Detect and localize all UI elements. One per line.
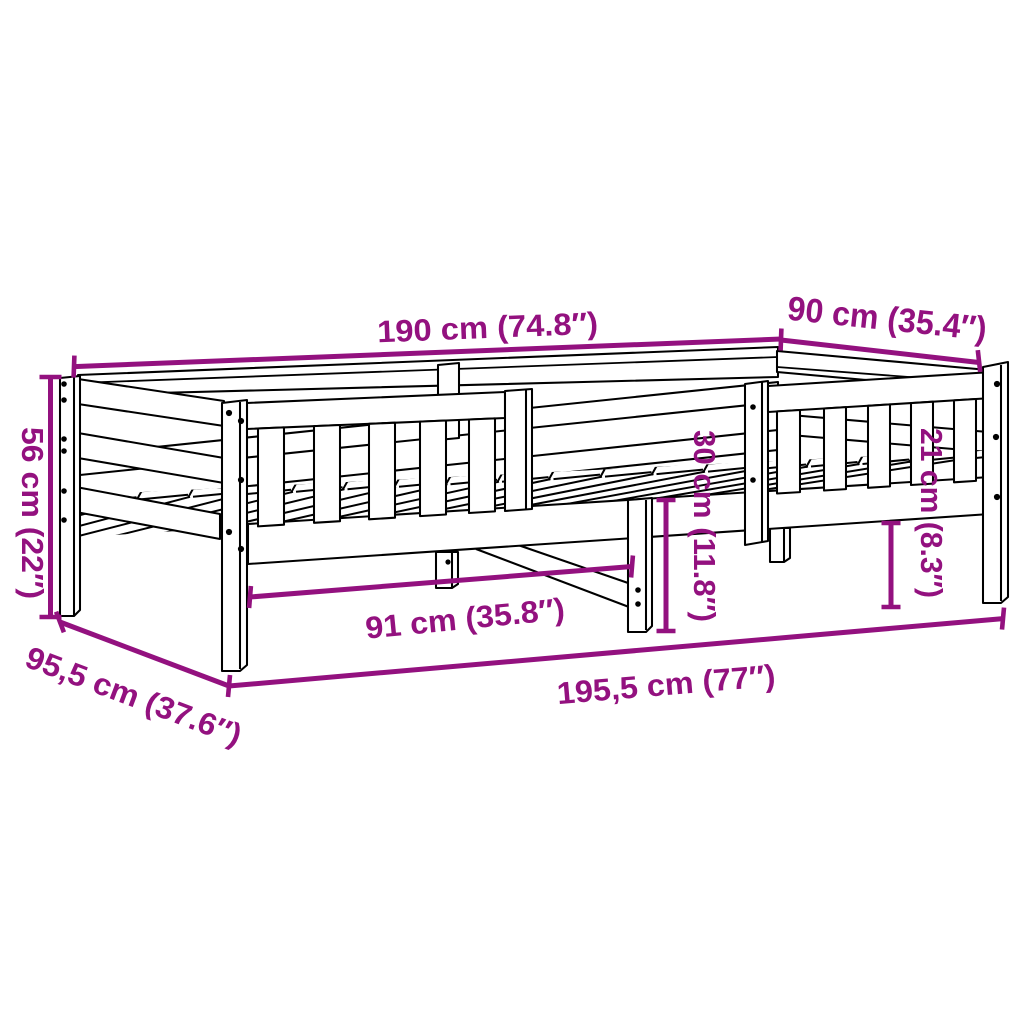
- svg-text:56 cm (22″): 56 cm (22″): [15, 427, 50, 599]
- svg-text:30 cm (11.8″): 30 cm (11.8″): [687, 430, 722, 622]
- svg-text:21 cm (8.3″): 21 cm (8.3″): [914, 428, 949, 598]
